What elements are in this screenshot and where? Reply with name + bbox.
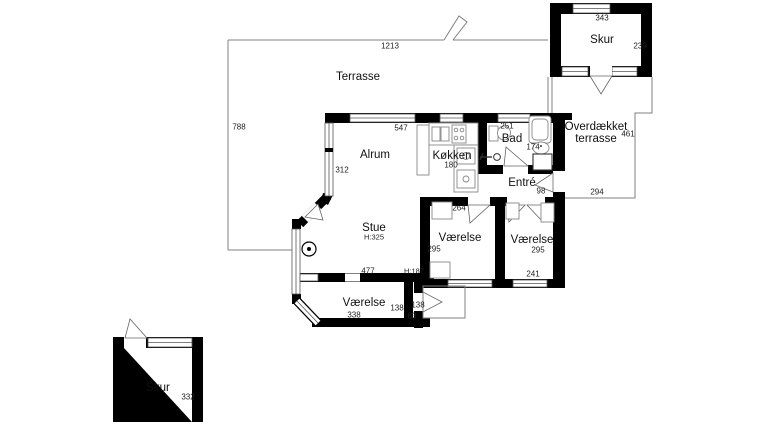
room-label-overdaekket-2: terrasse: [575, 133, 617, 145]
room-label-bad: Bad: [502, 133, 522, 145]
dim-terrasse-left: 788: [232, 123, 245, 132]
room-label-alrum: Alrum: [360, 149, 390, 161]
dim-door-width: 63: [408, 312, 417, 321]
dim-vaerelse-left-h: 295: [427, 245, 440, 254]
room-label-vaerelse-left: Værelse: [439, 232, 482, 244]
room-label-vaerelse-right: Værelse: [511, 234, 554, 246]
toilet: [489, 126, 498, 141]
dim-kokken: 180: [444, 161, 457, 170]
vaerelse-left-door: [468, 205, 490, 223]
dim-niche-left: 138: [390, 304, 403, 313]
dim-vaerelse-left-top: 264: [452, 204, 465, 213]
skur-top-door: [590, 76, 612, 94]
kitchen-stove: [452, 125, 466, 143]
dim-bad-top: 251: [500, 122, 513, 131]
dim-stue-bottom: 477: [361, 267, 374, 276]
dim-bad-right: 174: [526, 143, 539, 152]
room-label-overdaekket-1: Overdækket: [565, 121, 628, 133]
dim-vaerelse-right-h: 295: [531, 246, 544, 255]
room-label-skur-top: Skur: [590, 34, 614, 46]
dim-overdaekket-right: 461: [621, 130, 634, 139]
wood-stove-icon: [302, 242, 316, 256]
bad-door: [504, 147, 528, 166]
room-label-entre: Entré: [508, 177, 536, 189]
vestibule-door: [423, 292, 442, 312]
skur-bottom-left-walls: [113, 319, 203, 422]
dim-vaerelse-right-b: 241: [526, 270, 539, 279]
dim-skur-top-height: 239: [633, 42, 646, 51]
dim-stue-ceiling: H:325: [364, 233, 384, 242]
dim-skur-top-width: 343: [595, 14, 608, 23]
dim-terrasse-top: 1213: [381, 42, 399, 51]
floor-plan: Terrasse Skur Skur Alrum Køkken Bad Entr…: [0, 0, 768, 422]
dim-skur-bottom-w: 332: [181, 393, 194, 402]
room-label-skur-bottom: Skur: [146, 382, 170, 394]
room-label-vaerelse-bottom: Værelse: [343, 297, 386, 309]
floor-plan-drawing: [0, 0, 768, 422]
dim-overdaekket-bottom: 294: [590, 188, 603, 197]
skur-bottom-door: [125, 319, 147, 338]
dim-vaerelse-bottom-w: 338: [347, 311, 360, 320]
room-label-terrasse: Terrasse: [336, 71, 380, 83]
shower: [533, 154, 552, 170]
dim-entre: 98: [537, 187, 546, 196]
kitchen-sink: [432, 127, 440, 141]
dim-alrum-left: 312: [335, 166, 348, 175]
support-column: [565, 113, 572, 120]
dim-vaerelse-bottom-ceiling: H:187: [404, 267, 424, 276]
dim-niche-right: 138: [411, 301, 424, 310]
dim-alrum-top: 547: [394, 124, 407, 133]
